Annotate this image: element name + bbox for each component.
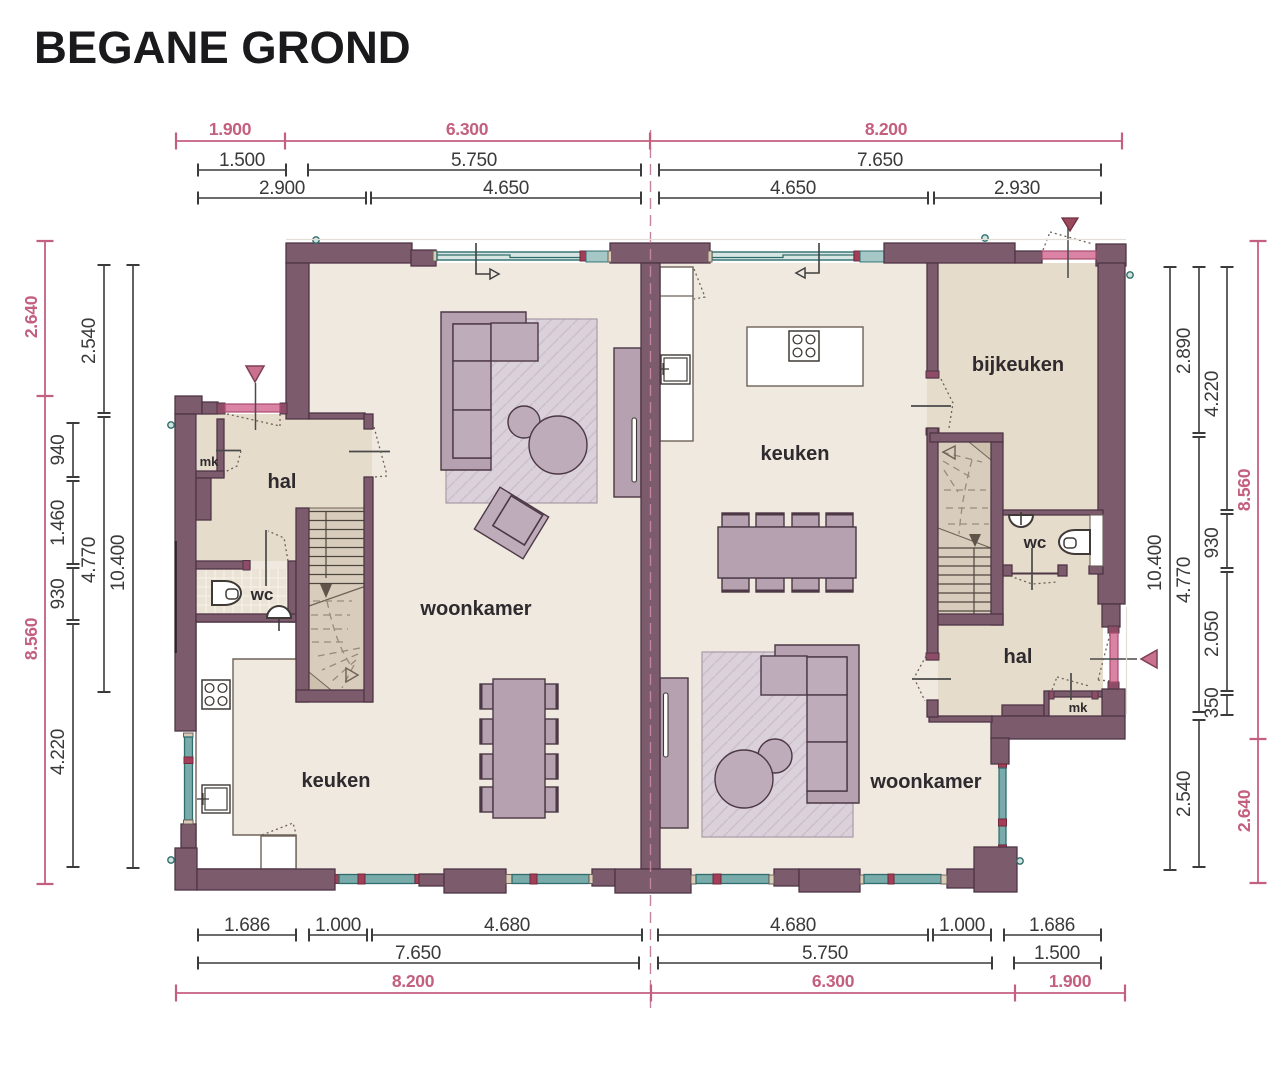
- svg-text:1.000: 1.000: [939, 915, 985, 936]
- svg-text:8.200: 8.200: [865, 119, 908, 139]
- svg-text:930: 930: [48, 579, 69, 610]
- svg-text:1.686: 1.686: [224, 915, 270, 936]
- svg-text:wc: wc: [250, 585, 274, 604]
- svg-text:BEGANE GROND: BEGANE GROND: [34, 22, 411, 73]
- svg-text:4.770: 4.770: [79, 537, 100, 583]
- svg-text:7.650: 7.650: [395, 943, 441, 964]
- svg-text:1.900: 1.900: [1049, 971, 1092, 991]
- svg-text:woonkamer: woonkamer: [869, 771, 981, 793]
- svg-text:2.640: 2.640: [1234, 789, 1254, 832]
- svg-text:2.900: 2.900: [259, 178, 305, 199]
- svg-text:hal: hal: [268, 471, 297, 493]
- svg-text:2.640: 2.640: [21, 295, 41, 338]
- svg-text:6.300: 6.300: [812, 971, 855, 991]
- svg-text:4.650: 4.650: [770, 178, 816, 199]
- svg-text:8.560: 8.560: [21, 617, 41, 660]
- svg-text:keuken: keuken: [302, 770, 371, 792]
- svg-text:8.560: 8.560: [1234, 468, 1254, 511]
- svg-text:mk: mk: [200, 454, 220, 469]
- svg-text:2.540: 2.540: [1174, 771, 1195, 817]
- svg-text:350: 350: [1202, 688, 1223, 719]
- svg-text:4.680: 4.680: [484, 915, 530, 936]
- svg-text:4.220: 4.220: [48, 729, 69, 775]
- svg-text:5.750: 5.750: [451, 150, 497, 171]
- svg-text:4.770: 4.770: [1174, 557, 1195, 603]
- svg-text:2.890: 2.890: [1174, 328, 1195, 374]
- svg-text:keuken: keuken: [761, 443, 830, 465]
- svg-text:1.500: 1.500: [219, 150, 265, 171]
- svg-text:woonkamer: woonkamer: [419, 598, 531, 620]
- svg-text:2.050: 2.050: [1202, 611, 1223, 657]
- svg-text:wc: wc: [1023, 533, 1047, 552]
- svg-text:2.540: 2.540: [79, 318, 100, 364]
- svg-text:4.220: 4.220: [1202, 371, 1223, 417]
- svg-text:4.680: 4.680: [770, 915, 816, 936]
- svg-text:1.686: 1.686: [1029, 915, 1075, 936]
- svg-text:4.650: 4.650: [483, 178, 529, 199]
- svg-text:1.900: 1.900: [209, 119, 252, 139]
- svg-text:2.930: 2.930: [994, 178, 1040, 199]
- svg-text:6.300: 6.300: [446, 119, 489, 139]
- svg-text:1.460: 1.460: [48, 500, 69, 546]
- svg-text:bijkeuken: bijkeuken: [972, 354, 1064, 376]
- svg-text:10.400: 10.400: [1145, 535, 1166, 591]
- svg-text:7.650: 7.650: [857, 150, 903, 171]
- svg-text:930: 930: [1202, 528, 1223, 559]
- svg-text:1.500: 1.500: [1034, 943, 1080, 964]
- svg-text:hal: hal: [1004, 646, 1033, 668]
- svg-text:5.750: 5.750: [802, 943, 848, 964]
- svg-text:10.400: 10.400: [108, 535, 129, 591]
- svg-text:1.000: 1.000: [315, 915, 361, 936]
- svg-text:8.200: 8.200: [392, 971, 435, 991]
- svg-text:940: 940: [48, 435, 69, 466]
- svg-text:mk: mk: [1069, 700, 1089, 715]
